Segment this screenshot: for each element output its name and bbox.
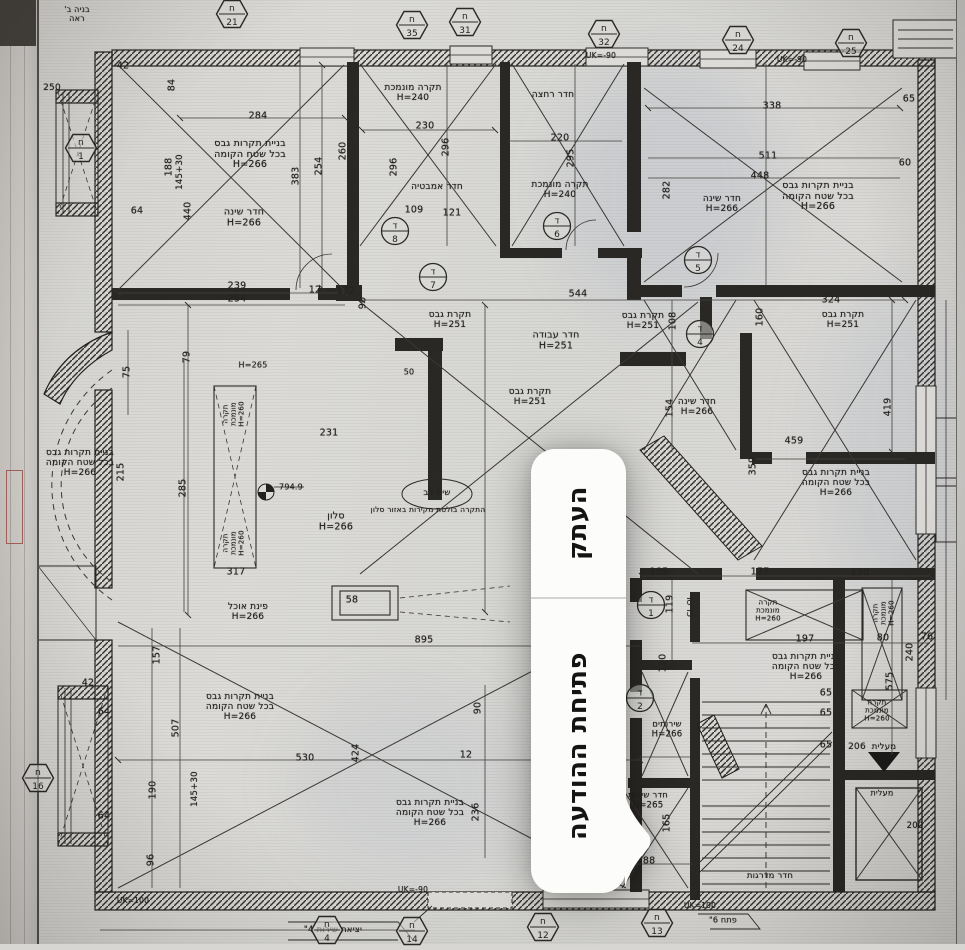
axis-marker-hexagon: ח21 [215,0,249,33]
svg-text:ח: ח [540,917,546,927]
plan-label: חדר שינה H=266 [703,194,741,214]
plan-label: חדר מדרגות [747,872,793,882]
plan-label: 448 [751,172,770,183]
plan-label: 215 [117,463,128,482]
axis-marker-hexagon: ח13 [640,908,674,942]
plan-label: 250 [43,83,61,93]
svg-text:12: 12 [537,931,548,941]
svg-text:ח: ח [78,138,84,148]
plan-label: תקרה מונמכת H=260 [864,699,890,722]
svg-text:ח: ח [409,921,415,931]
door-tag-circle: ד7 [418,262,448,296]
svg-text:4: 4 [697,338,703,348]
plan-label: 96 [147,854,158,867]
svg-text:8: 8 [392,235,398,245]
plan-label: 58 [346,596,359,607]
axis-marker-hexagon: ח31 [448,7,482,41]
plan-label: 64 [131,207,144,218]
axis-marker-hexagon: ח32 [587,19,621,53]
plan-label: 42 [82,679,95,690]
svg-text:ח: ח [462,12,468,22]
svg-text:35: 35 [406,29,417,39]
plan-label: 65 [820,741,833,752]
plan-label: תקרה מונמכת H=260 [872,600,895,626]
screenshot-root: { "context_menu": { "items": [ {"label":… [0,0,965,944]
plan-label: 145+30 [176,154,186,189]
axis-marker-hexagon: ח14 [395,916,429,950]
plan-label: פתח 6" [709,917,737,926]
plan-label: יציאת שירות 4" [304,926,362,936]
svg-text:ח: ח [229,4,235,14]
door-tag-circle: ד8 [380,216,410,250]
plan-label: 231 [320,429,339,440]
svg-text:ח: ח [601,24,607,34]
plan-label: 185 [650,568,669,579]
plan-label: 154 [666,399,677,418]
svg-text:2: 2 [637,702,643,712]
plan-label: בניית תקרות גבס בכל שטח הקומה H=266 [802,468,870,498]
svg-text:25: 25 [845,47,856,57]
plan-label: 324 [822,296,841,307]
plan-label: 79 [183,351,194,364]
plan-label: 895 [415,636,434,647]
svg-text:ד: ד [431,268,436,278]
door-tag-circle: ד6 [542,211,572,245]
plan-label: חדר עבודה H=251 [533,330,580,351]
plan-label: 65 [903,95,916,106]
plan-label: 157 [153,646,164,665]
plan-label: תקרת גבס H=251 [822,310,865,330]
axis-marker-hexagon: ח35 [395,10,429,44]
plan-label: שים לב [423,489,450,499]
plan-label: CL.OL [687,595,695,616]
plan-label: 285 [179,479,190,498]
plan-label: UK=-90 [777,56,807,64]
context-menu-pointer-icon [625,795,652,887]
plan-label: 80 [877,634,890,645]
door-tag-circle: ד5 [683,245,713,279]
plan-label: תקרה מונמכת H=240 [384,83,441,103]
plan-label: 240 [906,643,917,662]
plan-label: UK=-90 [586,52,616,60]
plan-label: בניית תקרות גבס בכל שטח הקומה H=266 [782,181,854,213]
plan-label: 177 [751,568,770,579]
plan-label: 260 [339,142,350,161]
svg-text:31: 31 [459,26,470,36]
plan-label: 42 [117,62,130,73]
svg-text:ח: ח [324,920,330,930]
svg-text:7: 7 [430,281,436,291]
svg-text:16: 16 [32,782,44,792]
plan-label: 197 [796,635,815,646]
door-tag-circle: ד4 [685,319,715,353]
plan-label: 424 [352,744,363,763]
plan-label: 383 [292,167,303,186]
plan-label: 190 [149,781,160,800]
plan-label: תקרה מונמכת H=240 [531,180,588,200]
plan-label: תקרה מונמכת H=260 [755,599,781,622]
plan-label: 507 [172,719,183,738]
plan-label: חדר אמבטיה [411,182,463,192]
plan-label: 206 [848,742,866,752]
plan-label: סלון H=266 [319,511,353,532]
plan-label: 254 [315,157,326,176]
plan-label: 150 [851,569,870,580]
plan-label: 296 [442,138,453,157]
plan-label: 12 [309,286,322,297]
axis-marker-hexagon: ח1 [64,133,98,167]
svg-text:6: 6 [554,230,560,240]
plan-label: בניית תקרות גבס בכל שטח הקומה H=266 [46,448,114,478]
svg-text:24: 24 [732,44,744,54]
svg-text:21: 21 [226,18,237,28]
menu-item-open-message-label: פתיחת ההודעה [564,652,594,840]
plan-label: 145+30 [191,771,201,806]
plan-label: 76 [921,633,934,644]
svg-text:5: 5 [695,264,701,274]
plan-label: תקרה מונמכת H=260 [222,530,245,556]
axis-marker-hexagon: ח16 [21,763,55,797]
plan-label: 419 [884,398,895,417]
plan-label: 459 [785,437,804,448]
plan-label: תקרת גבס H=251 [622,311,665,331]
plan-label: תקרת גבס H=251 [429,310,472,330]
plan-label: חדר שינה H=266 [224,207,264,228]
svg-text:ח: ח [654,913,660,923]
plan-label: התקרה בולטת מקירות באזור סלון [371,506,486,514]
plan-label: 239 [228,282,247,293]
svg-text:ד: ד [649,596,654,606]
svg-text:ד: ד [638,689,643,699]
plan-label: בניית תקרות גבס בכל שטח הקומה H=266 [206,692,274,722]
plan-label: 60 [899,159,912,170]
context-menu: העתק פתיחת ההודעה [531,449,626,893]
svg-text:ח: ח [35,768,41,778]
plan-label: 511 [759,152,778,163]
plan-label: 544 [569,290,588,301]
plan-label: בניית תקרות גבס בכל שטח הקומה H=266 [396,798,464,828]
plan-label: UK=100 [684,902,716,910]
svg-text:ח: ח [409,15,415,25]
plan-label: 50 [404,369,415,378]
plan-label: חדר רחצה [532,90,575,100]
svg-text:4: 4 [324,934,330,944]
svg-text:13: 13 [651,927,662,937]
svg-text:ד: ד [698,325,703,335]
plan-label: 230 [416,122,435,133]
plan-label: 84 [168,79,179,92]
plan-label: 794.9 [279,484,303,493]
plan-label: שירותים H=266 [652,720,683,739]
plan-label: 188 [165,158,176,177]
plan-label: 160 [756,308,767,327]
axis-marker-hexagon: ח12 [526,912,560,946]
plan-label: 75 [123,366,134,379]
svg-text:1: 1 [648,609,654,619]
plan-label: 254 [228,295,247,306]
svg-text:ח: ח [848,33,854,43]
plan-label: UK=-90 [398,886,428,894]
plan-label: 220 [551,134,570,145]
svg-text:ח: ח [735,30,741,40]
plan-label: בניית תקרות גבס בכל שטח הקומה H=266 [214,139,286,171]
plan-labels: בניית תקרות גבס בכל שטח הקומה H=266בניית… [0,0,965,944]
door-tag-circle: ד2 [625,683,655,717]
plan-label: 132 [337,287,356,298]
plan-label: 108 [669,312,680,331]
plan-label: פינת אוכל H=266 [228,602,268,622]
svg-text:1: 1 [78,152,84,162]
svg-text:32: 32 [598,38,609,48]
plan-label: 65 [820,689,833,700]
menu-item-copy-label: העתק [564,486,594,560]
svg-text:ד: ד [393,222,398,232]
plan-label: 200 [907,822,924,832]
svg-text:ד: ד [555,217,560,227]
plan-label: בניית תקרות גבס בכל שטח הקומה H=266 [772,652,840,682]
plan-label: 119 [666,595,677,614]
plan-label: UK=100 [117,897,149,905]
plan-label: 282 [663,181,674,200]
plan-label: 12 [460,751,473,762]
plan-label: 236 [472,803,483,822]
menu-item-open-message[interactable]: פתיחת ההודעה [531,599,626,893]
door-tag-circle: ד1 [636,590,666,624]
plan-label: 338 [763,102,782,113]
plan-label: 165 [663,814,674,833]
plan-label: 296 [390,158,401,177]
plan-label: 110 [659,654,670,673]
plan-label: 90 [359,297,370,310]
plan-label: 530 [296,754,315,765]
plan-label: 317 [227,568,246,579]
plan-label: חדר שינה H=266 [678,397,716,417]
plan-label: 109 [405,206,424,217]
plan-label: תקרת גבס H=251 [509,387,552,407]
plan-label: בניה ב' ראה [64,6,90,24]
plan-label: 284 [249,112,268,123]
plan-label: מעלית [870,790,893,799]
axis-marker-hexagon: ח24 [721,25,755,59]
plan-label: 121 [443,209,462,220]
plan-label: מעלית [872,743,896,753]
plan-label: 65 [820,709,833,720]
plan-label: 64 [98,708,111,719]
svg-text:ד: ד [696,251,701,261]
plan-label: 359 [749,457,760,476]
plan-label: 440 [184,202,195,221]
plan-label: 90 [474,702,485,715]
menu-item-copy[interactable]: העתק [531,449,626,597]
plan-label: 295 [567,149,578,168]
plan-label: 64 [98,812,111,823]
plan-label: H=265 [239,362,268,371]
plan-label: תקרה מונמכת H=260 [222,401,245,427]
axis-marker-hexagon: ח25 [834,28,868,62]
plan-label: 575 [886,672,897,691]
